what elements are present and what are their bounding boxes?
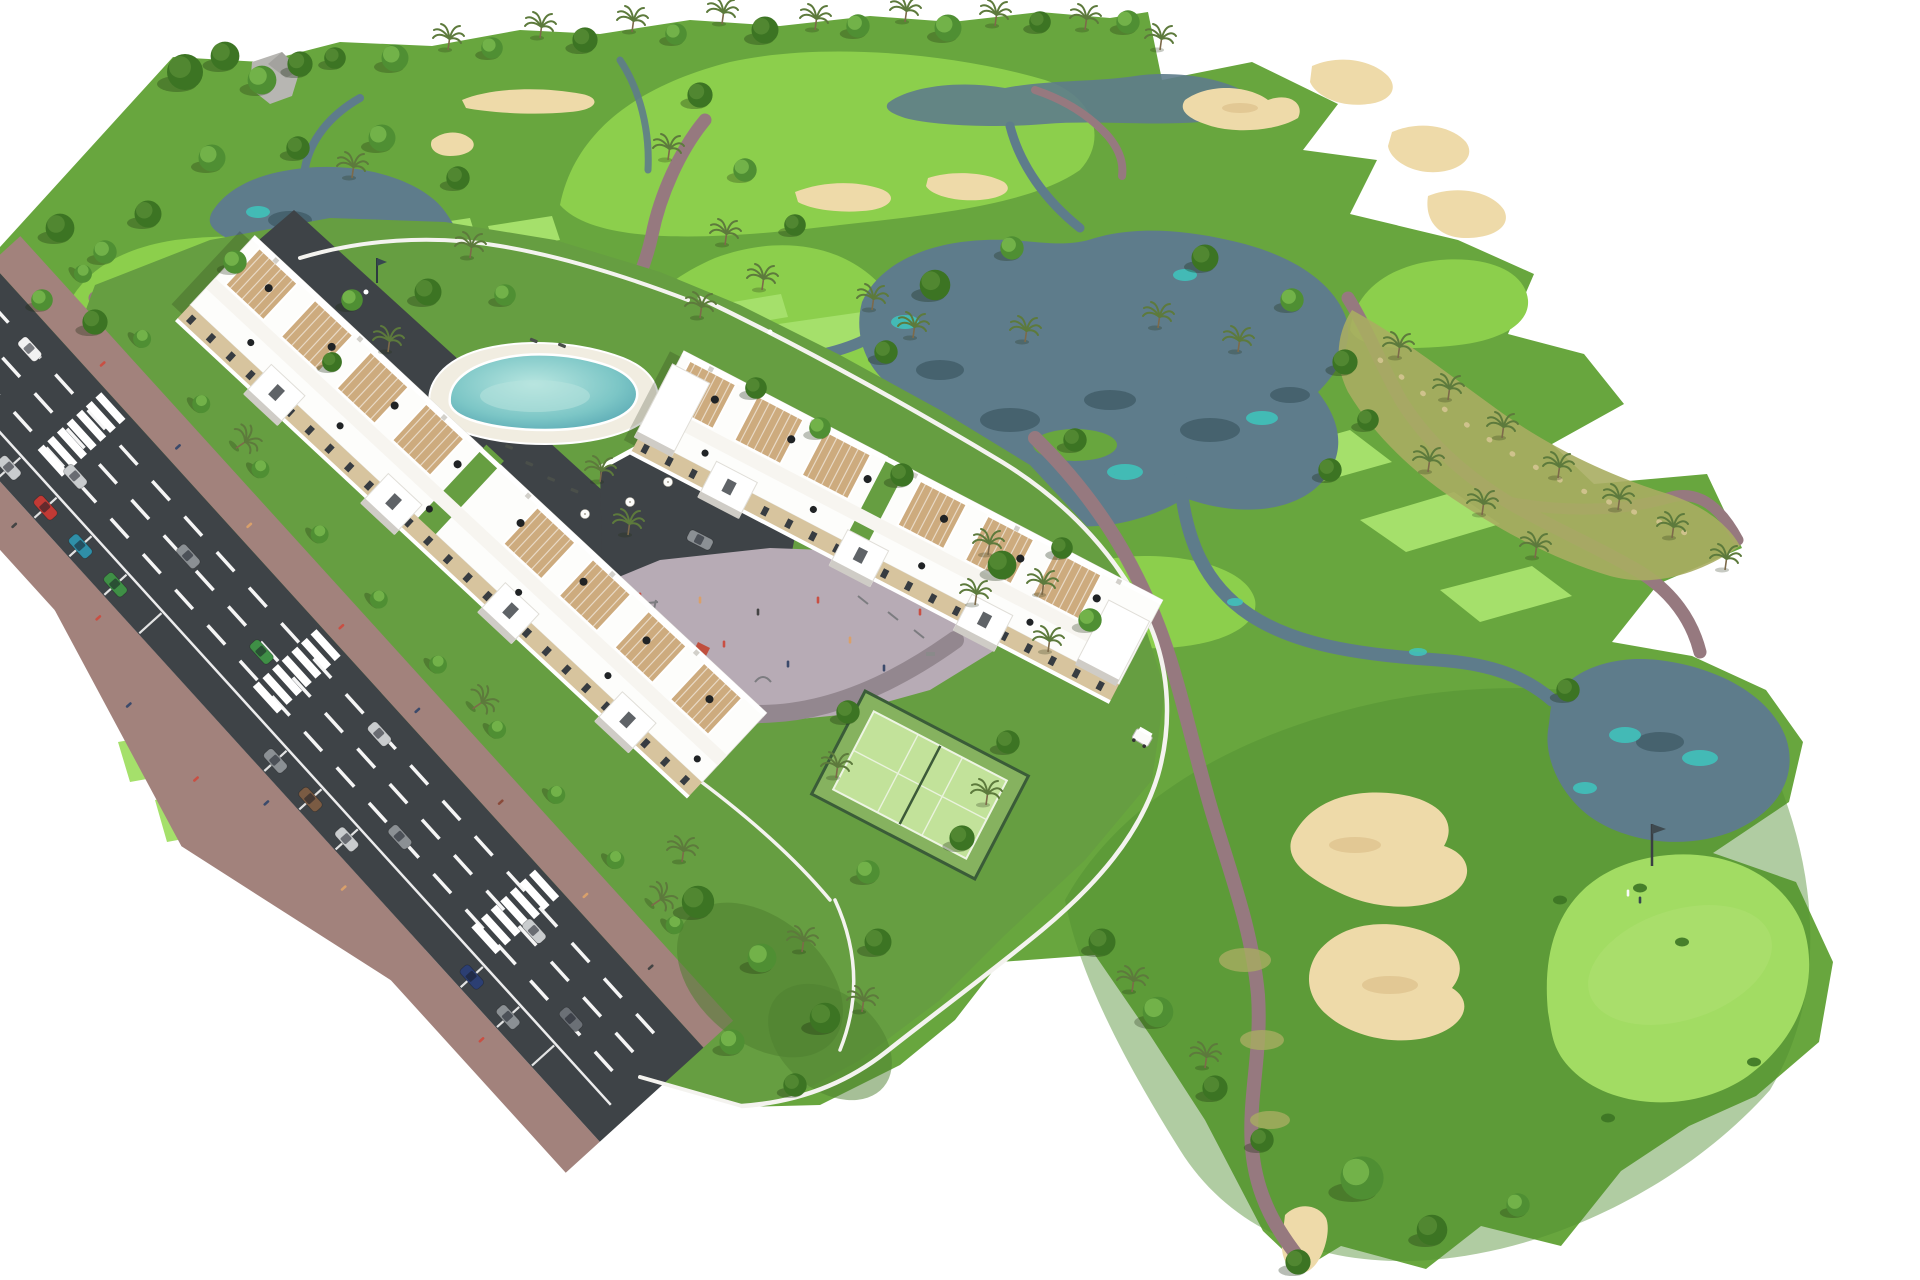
shrub-icon bbox=[1633, 884, 1647, 893]
shallow bbox=[1682, 750, 1718, 766]
ripple bbox=[1329, 837, 1381, 853]
golfer-icon bbox=[1639, 897, 1642, 904]
umbrella-icon bbox=[581, 510, 590, 519]
person-icon bbox=[699, 597, 702, 604]
shrub-icon bbox=[1601, 1114, 1615, 1123]
aerial-render: Aerial 3D architectural rendering of a w… bbox=[0, 0, 1920, 1280]
person-icon bbox=[787, 661, 790, 668]
reflection bbox=[980, 408, 1040, 432]
golfer bbox=[768, 330, 773, 335]
shallow bbox=[1246, 411, 1278, 425]
golfer bbox=[364, 290, 369, 295]
person-icon bbox=[723, 641, 726, 648]
dry-patch bbox=[1219, 948, 1271, 972]
person-icon bbox=[757, 609, 760, 616]
umbrella-icon bbox=[664, 478, 673, 487]
shallow bbox=[1227, 598, 1243, 606]
dry-patch bbox=[1240, 1030, 1284, 1050]
person-icon bbox=[883, 665, 886, 672]
ripple bbox=[1362, 976, 1418, 994]
bunker bbox=[1427, 190, 1506, 238]
shrub-icon bbox=[1675, 938, 1689, 947]
bunker bbox=[1388, 126, 1469, 173]
tree-icon bbox=[203, 42, 240, 72]
pool-highlight bbox=[480, 380, 590, 412]
ripple bbox=[1222, 103, 1258, 113]
shrub-icon bbox=[1553, 896, 1567, 905]
person-icon bbox=[817, 597, 820, 604]
person-icon bbox=[849, 637, 852, 644]
shallow bbox=[1573, 782, 1597, 794]
golfer-icon bbox=[1627, 890, 1630, 897]
shallow bbox=[1107, 464, 1143, 480]
shallow bbox=[1609, 727, 1641, 743]
person-icon bbox=[919, 609, 922, 616]
umbrella-icon bbox=[626, 498, 635, 507]
aerial-render-page: Aerial 3D architectural rendering of a w… bbox=[0, 0, 1920, 1280]
shallow bbox=[246, 206, 270, 218]
reflection bbox=[1636, 732, 1684, 752]
shallow bbox=[1409, 648, 1427, 656]
reflection bbox=[1084, 390, 1136, 410]
bench bbox=[926, 652, 935, 656]
reflection bbox=[1180, 418, 1240, 442]
shrub-icon bbox=[1747, 1058, 1761, 1067]
reflection bbox=[1270, 387, 1310, 403]
reflection bbox=[916, 360, 964, 380]
dry-patch bbox=[1250, 1111, 1290, 1129]
